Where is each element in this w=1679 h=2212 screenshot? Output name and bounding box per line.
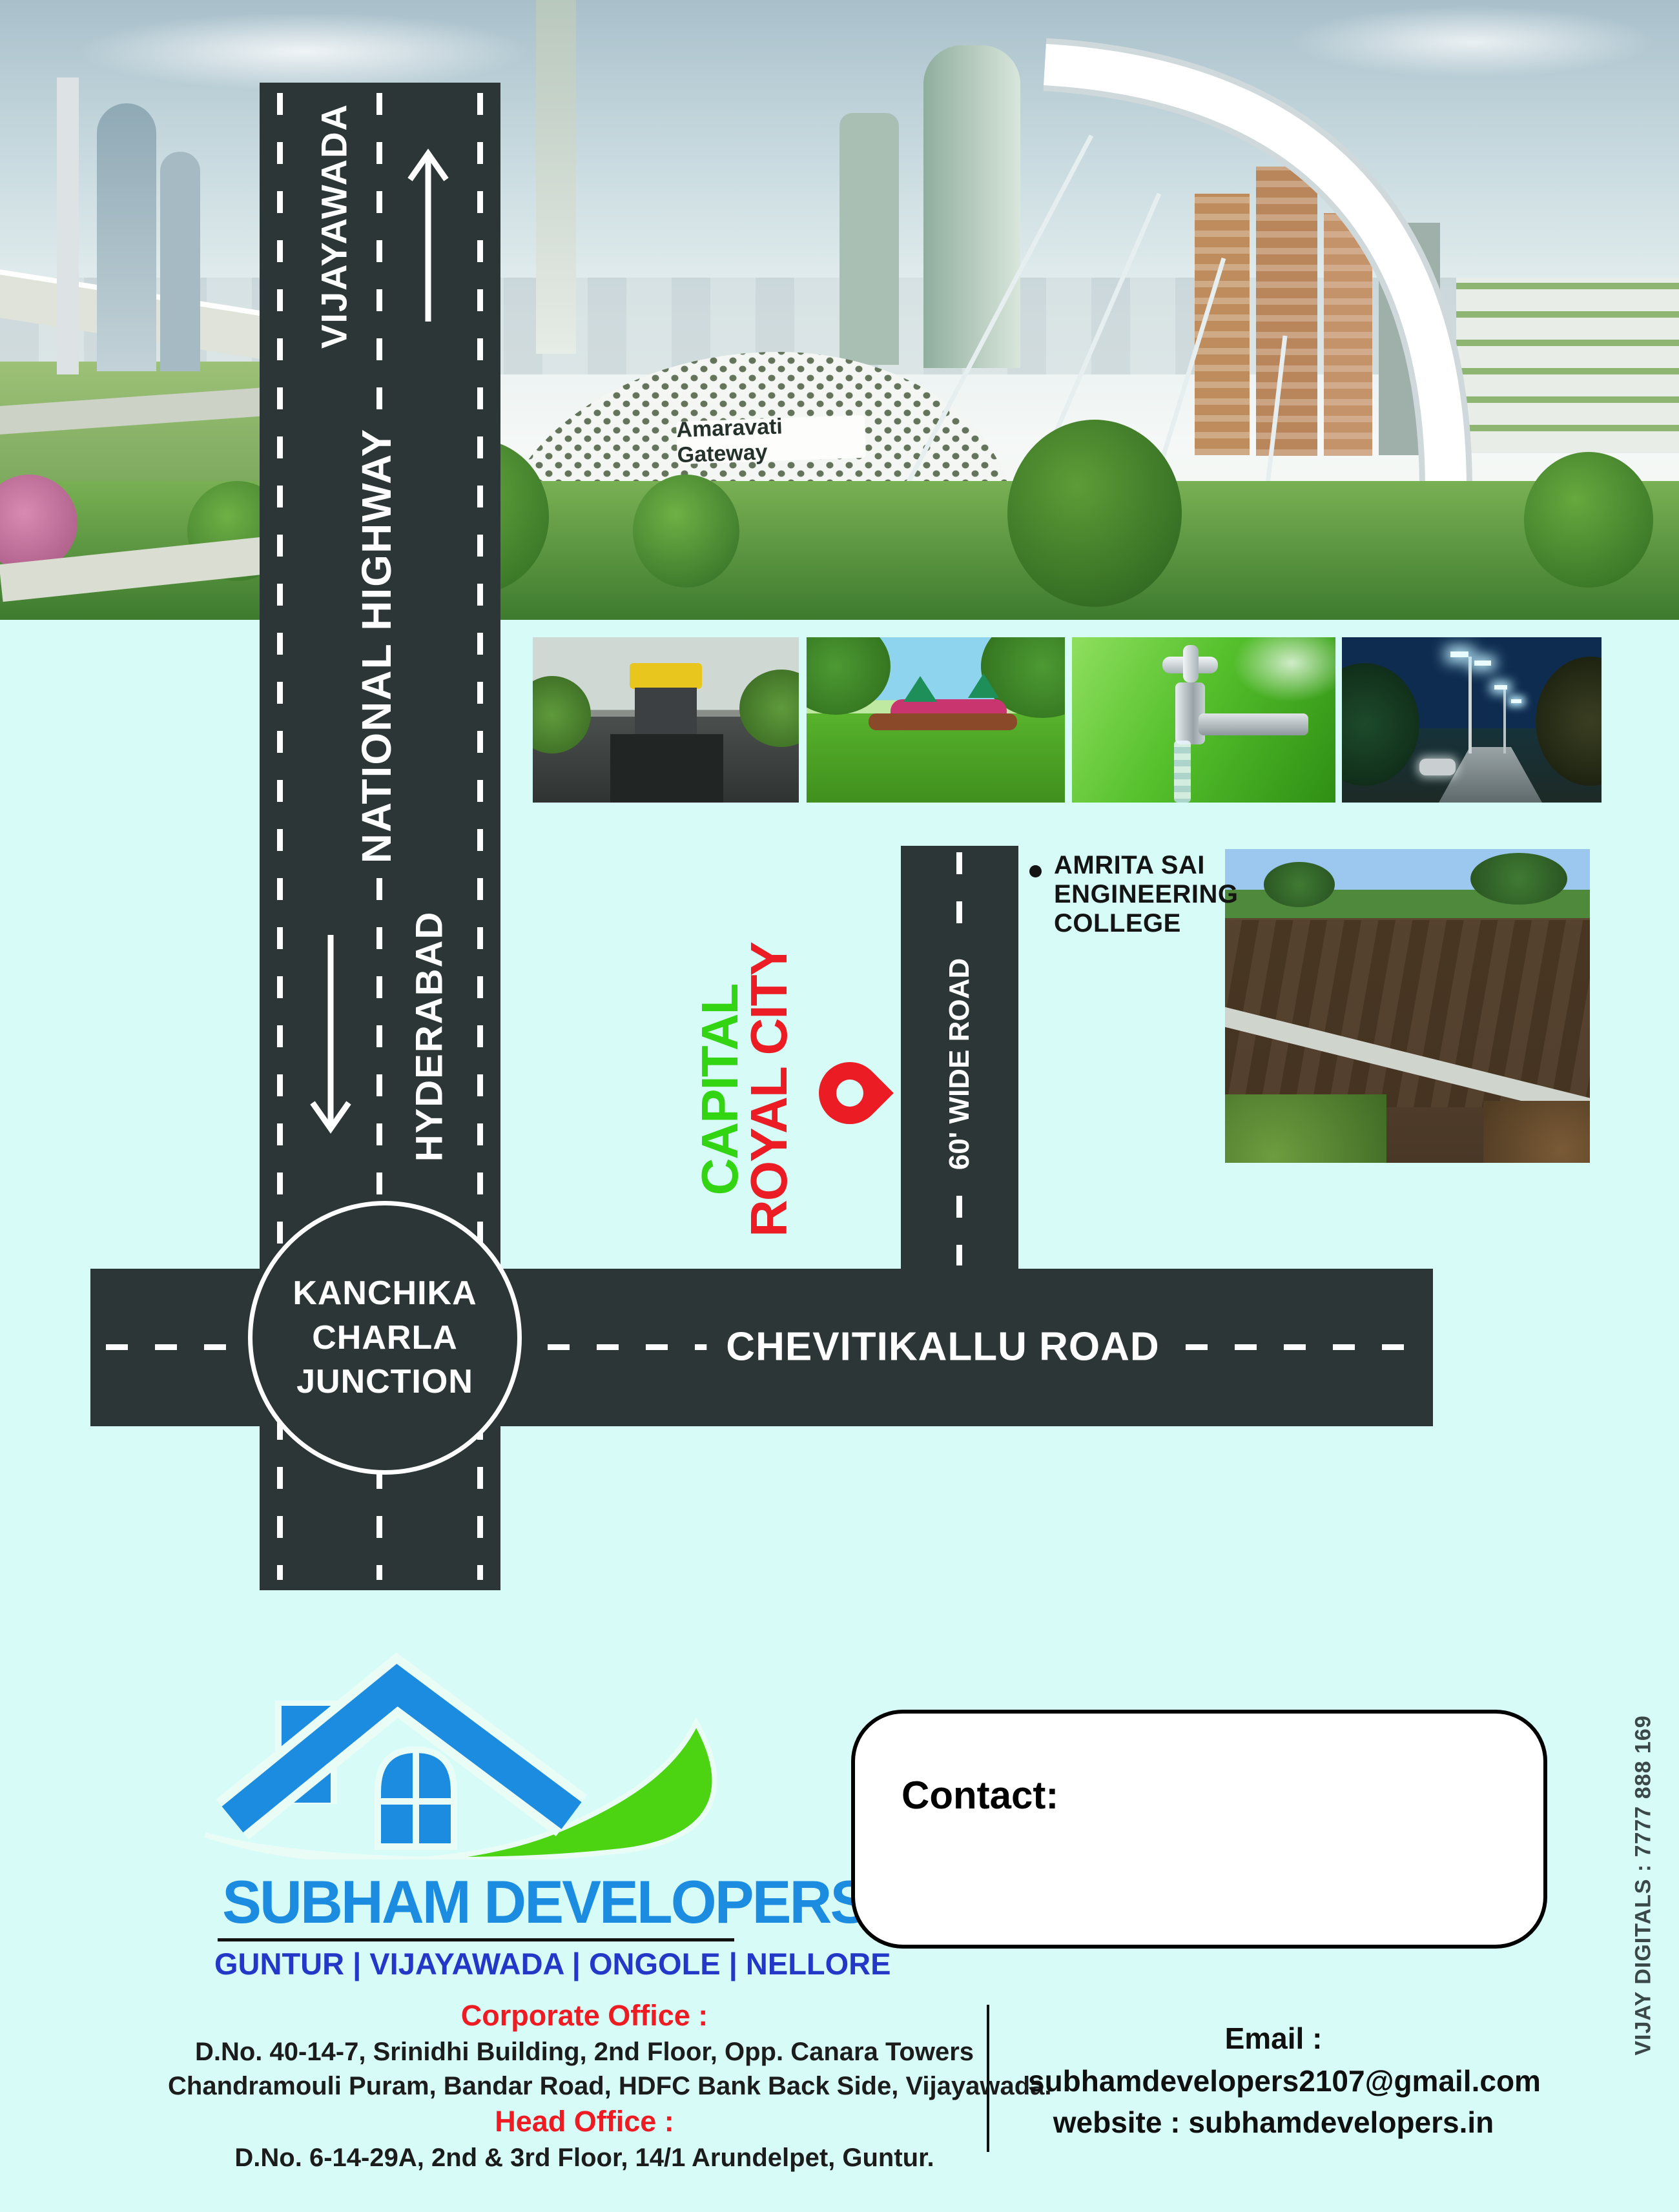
grass-patch [1225,1094,1386,1163]
landmark-line2: ENGINEERING [1054,880,1239,909]
water-stream [1174,741,1191,803]
brand-cities: GUNTUR | VIJAYAWADA | ONGOLE | NELLORE [214,1946,737,1982]
street-lamp [1511,699,1521,703]
location-pin-hole [830,1074,869,1112]
tree [807,637,891,715]
site-name-line1: CAPITAL [695,943,745,1237]
printer-credit: VIJAY DIGITALS : 7777 888 169 [1631,1715,1656,2055]
highway-city-top-label: VIJAYAWADA [309,94,359,358]
highway-name-label: NATIONAL HIGHWAY [347,414,406,877]
tree [633,475,739,588]
footer-divider [987,2005,989,2152]
landmark-line3: COLLEGE [1054,909,1239,938]
website-value[interactable]: website : subhamdevelopers.in [1028,2105,1519,2140]
photo-road-paving [533,637,799,803]
reach-block: Email : subhamdevelopers2107@gmail.com w… [1028,2021,1519,2140]
cross-road-label: CHEVITIKALLU ROAD [706,1320,1179,1374]
light-pole [1503,689,1506,753]
photo-plot-development [1225,849,1590,1163]
street-lamp [1474,661,1491,666]
street-lamp [1450,651,1468,657]
landmark-line1: AMRITA SAI [1054,851,1239,880]
tap-handle [1183,645,1199,682]
city-banner-photo: Amaravati Gateway [0,0,1679,620]
wide-road-label: 60' WIDE ROAD [938,947,981,1182]
tree [533,676,591,753]
photo-park-playground [807,637,1065,803]
tree-line [1470,853,1567,905]
highway-city-bottom-label: HYDERABAD [404,902,455,1171]
tap-body [1175,682,1205,744]
tap-pipe [1199,713,1308,735]
company-logo-icon [194,1646,762,1859]
junction-circle: KANCHIKA CHARLA JUNCTION [248,1201,522,1475]
head-office-line1: D.No. 6-14-29A, 2nd & 3rd Floor, 14/1 Ar… [168,2144,1001,2173]
tree [1007,420,1182,607]
email-label: Email : [1028,2021,1519,2056]
site-name-line2: ROYAL CITY [745,943,794,1237]
location-pin-icon [806,1049,894,1137]
paver-machine-body [635,688,697,738]
wide-road: 60' WIDE ROAD [901,846,1018,1269]
junction-line2: CHARLA [312,1316,458,1360]
contact-title: Contact: [901,1773,1058,1818]
light-pole [1468,657,1472,753]
flyer-page: Amaravati Gateway [0,0,1679,2212]
corporate-office-line2: Chandramouli Puram, Bandar Road, HDFC Ba… [168,2072,1001,2101]
tree [739,670,799,747]
photo-street-lights [1342,637,1602,803]
tree [1536,657,1602,786]
head-office-label: Head Office : [168,2105,1001,2138]
tree [1524,452,1653,588]
tree [1342,663,1419,786]
arrow-up-icon [402,128,454,334]
arrow-down-icon [305,922,356,1154]
junction-line3: JUNCTION [296,1360,473,1404]
play-roof [968,673,999,698]
offices-block: Corporate Office : D.No. 40-14-7, Srinid… [168,1999,1001,2173]
junction-line1: KANCHIKA [293,1271,477,1316]
paver-machine-top [630,663,702,689]
corporate-office-line1: D.No. 40-14-7, Srinidhi Building, 2nd Fl… [168,2038,1001,2067]
tree-line [1264,862,1335,907]
contact-box: Contact: [851,1710,1547,1949]
photo-water-tap [1072,637,1335,803]
car [1419,759,1456,775]
play-roof [903,676,937,702]
play-base [869,713,1017,730]
site-name: CAPITAL ROYAL CITY [695,943,794,1237]
company-name: SUBHAM DEVELOPERS [222,1867,730,1937]
fresh-asphalt [610,734,723,803]
email-value[interactable]: subhamdevelopers2107@gmail.com [1028,2064,1519,2098]
brand-divider-line [218,1938,734,1941]
dirt-mound [1483,1101,1590,1163]
corporate-office-label: Corporate Office : [168,1999,1001,2033]
street-lamp [1494,685,1507,690]
landmark-label: AMRITA SAI ENGINEERING COLLEGE [1054,851,1239,939]
sky-glow [1233,637,1335,702]
landmark-bullet [1029,865,1042,877]
night-road [1439,747,1542,803]
